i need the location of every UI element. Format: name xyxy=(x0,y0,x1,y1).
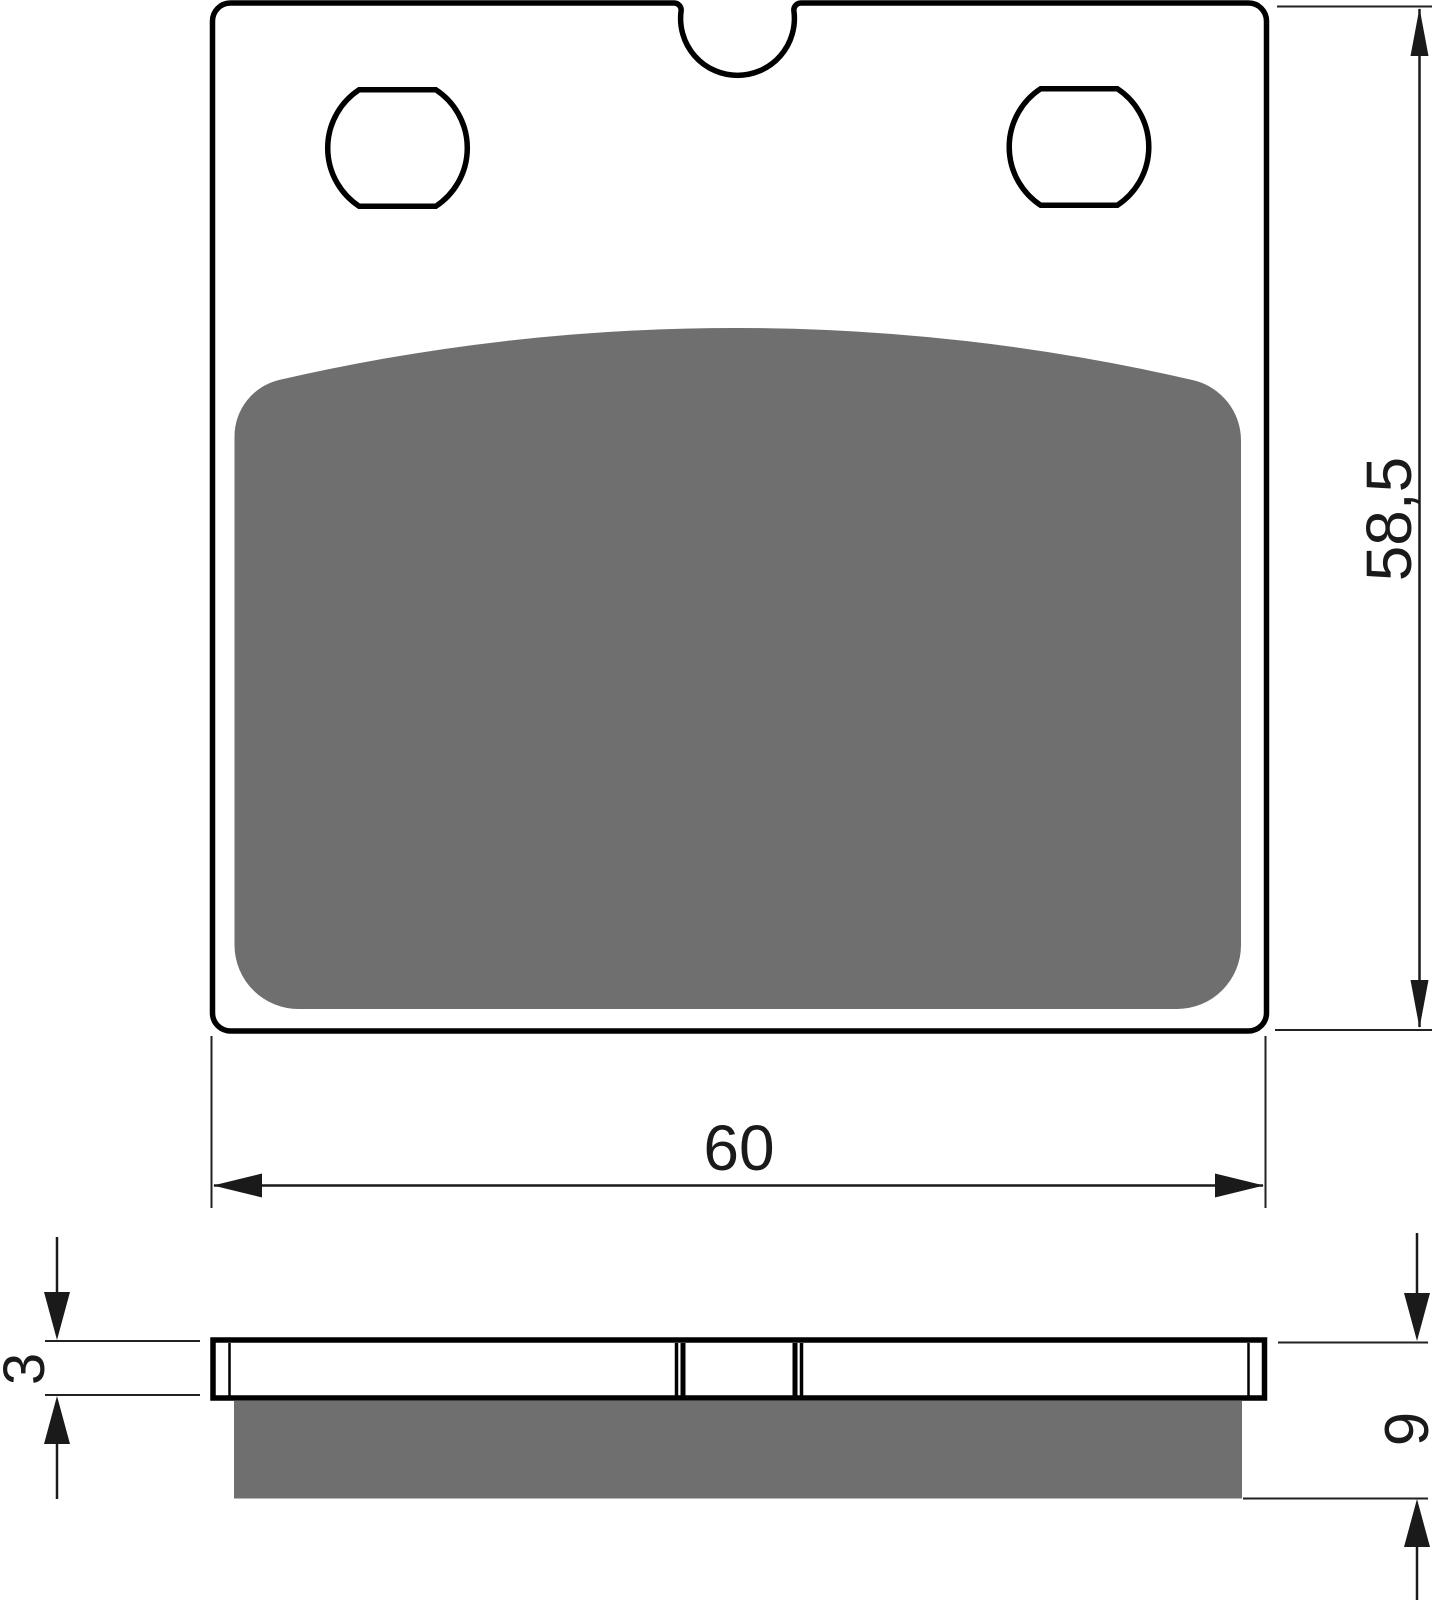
svg-text:60: 60 xyxy=(703,1112,774,1184)
svg-text:58,5: 58,5 xyxy=(1353,457,1425,582)
svg-text:9: 9 xyxy=(1373,1412,1435,1446)
svg-text:3: 3 xyxy=(0,1353,57,1385)
